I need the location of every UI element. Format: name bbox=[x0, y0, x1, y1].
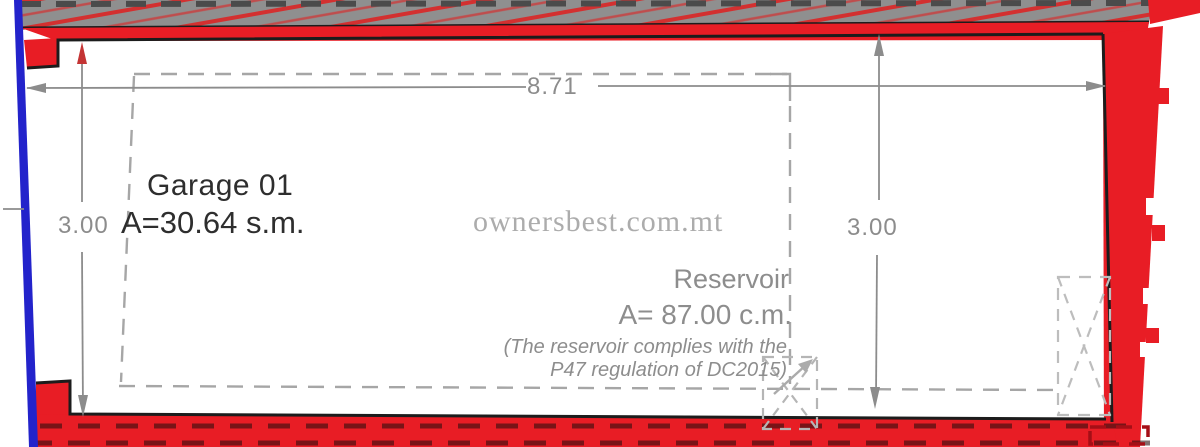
garage-area-label: A=30.64 s.m. bbox=[121, 205, 305, 241]
arrow-down-icon bbox=[870, 387, 880, 409]
bottom-left-pier bbox=[36, 381, 70, 415]
reservoir-title: Reservoir bbox=[673, 264, 789, 295]
arrow-left-icon bbox=[26, 83, 46, 93]
right-wall-bump bbox=[1152, 225, 1165, 241]
right-wall-notch bbox=[1140, 342, 1153, 357]
right-height-dimension-label: 3.00 bbox=[847, 214, 898, 242]
reservoir-note-line2: P47 regulation of DC2015) bbox=[550, 359, 787, 382]
watermark: ownersbest.com.mt bbox=[473, 205, 723, 239]
top-right-wall-wedge bbox=[1148, 0, 1200, 24]
right-wall-notch bbox=[1143, 288, 1157, 304]
right-wall-bump bbox=[1146, 328, 1159, 343]
floor-plan-canvas: 8.71 3.00 3.00 Garage 01 A=30.64 s.m. ow… bbox=[0, 0, 1200, 447]
shaft-symbol-right bbox=[1058, 277, 1110, 415]
left-height-dimension-label: 3.00 bbox=[58, 212, 109, 240]
right-wall-notch bbox=[1146, 198, 1161, 215]
arrow-up-icon bbox=[77, 42, 87, 64]
top-left-pier bbox=[24, 38, 58, 68]
right-wall-bump bbox=[1157, 88, 1169, 104]
width-dimension-label: 8.71 bbox=[527, 73, 578, 101]
dashed-boundary-corner bbox=[770, 74, 790, 101]
reservoir-note-line1: (The reservoir complies with the bbox=[504, 336, 787, 359]
reservoir-area-label: A= 87.00 c.m. bbox=[618, 299, 792, 331]
dashed-boundary-bottom bbox=[119, 386, 1056, 390]
garage-title: Garage 01 bbox=[147, 169, 293, 203]
bottom-wall-inner-edge bbox=[36, 381, 1106, 419]
